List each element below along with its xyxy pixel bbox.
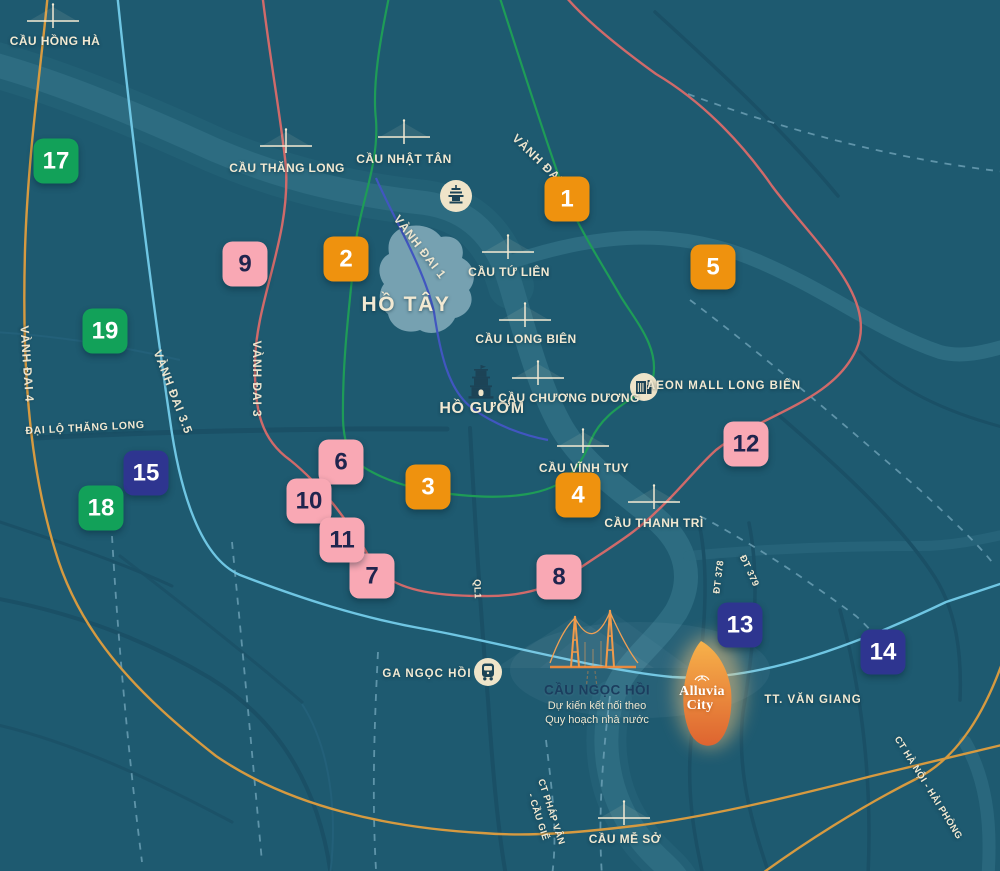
bridge-label-cau-me-so: CẦU MỄ SỞ	[589, 832, 662, 846]
brand-alluvia-line2: City	[687, 698, 714, 714]
map-badge-13[interactable]: 13	[718, 603, 763, 648]
map-badge-19[interactable]: 19	[83, 309, 128, 354]
bridge-label-cau-thang-long: CẦU THĂNG LONG	[229, 161, 345, 175]
bridge-label-cau-tu-lien: CẦU TỨ LIÊN	[468, 265, 550, 279]
bridge-label-cau-hong-ha: CẦU HỒNG HÀ	[10, 34, 100, 48]
map-badge-11[interactable]: 11	[320, 518, 365, 563]
place-label-aeon-mall: AEON MALL LONG BIÊN	[647, 380, 801, 392]
bridge-label-cau-chuong-duong: CẦU CHƯƠNG DƯƠNG	[498, 391, 639, 405]
bridge-label-cau-long-bien: CẦU LONG BIÊN	[475, 332, 576, 346]
hanoi-location-map: VÀNH ĐAI 4VÀNH ĐAI 3.5VÀNH ĐAI 3VÀNH ĐAI…	[0, 0, 1000, 871]
place-label-ho-tay: HỒ TÂY	[362, 293, 451, 317]
map-canvas	[0, 0, 1000, 871]
map-badge-3[interactable]: 3	[406, 465, 451, 510]
map-badge-18[interactable]: 18	[79, 486, 124, 531]
bridge-label-cau-nhat-tan: CẦU NHẬT TÂN	[356, 152, 451, 166]
bridge-label-cau-thanh-tri: CẦU THANH TRÌ	[604, 516, 703, 530]
pagoda-icon	[440, 180, 472, 212]
map-badge-6[interactable]: 6	[319, 440, 364, 485]
road-label-vanh-dai-3: VÀNH ĐAI 3	[250, 340, 264, 417]
map-badge-12[interactable]: 12	[724, 422, 769, 467]
map-badge-4[interactable]: 4	[556, 473, 601, 518]
map-badge-1[interactable]: 1	[545, 177, 590, 222]
note-cau-ngoc-hoi-line1: Dự kiến kết nối theo	[548, 700, 646, 712]
road-label-ql1: QL1	[471, 579, 483, 599]
map-badge-17[interactable]: 17	[34, 139, 79, 184]
map-badge-15[interactable]: 15	[124, 451, 169, 496]
map-badge-2[interactable]: 2	[324, 237, 369, 282]
map-badge-9[interactable]: 9	[223, 242, 268, 287]
note-cau-ngoc-hoi-line2: Quy hoạch nhà nước	[545, 714, 649, 726]
place-label-tt-van-giang: TT. VĂN GIANG	[764, 694, 861, 706]
map-badge-5[interactable]: 5	[691, 245, 736, 290]
map-badge-14[interactable]: 14	[861, 630, 906, 675]
note-cau-ngoc-hoi-title: CẦU NGỌC HỒI	[544, 683, 650, 698]
map-badge-8[interactable]: 8	[537, 555, 582, 600]
map-badge-10[interactable]: 10	[287, 479, 332, 524]
place-label-ga-ngoc-hoi: GA NGỌC HỒI	[382, 668, 471, 680]
train-station-icon	[474, 658, 502, 686]
